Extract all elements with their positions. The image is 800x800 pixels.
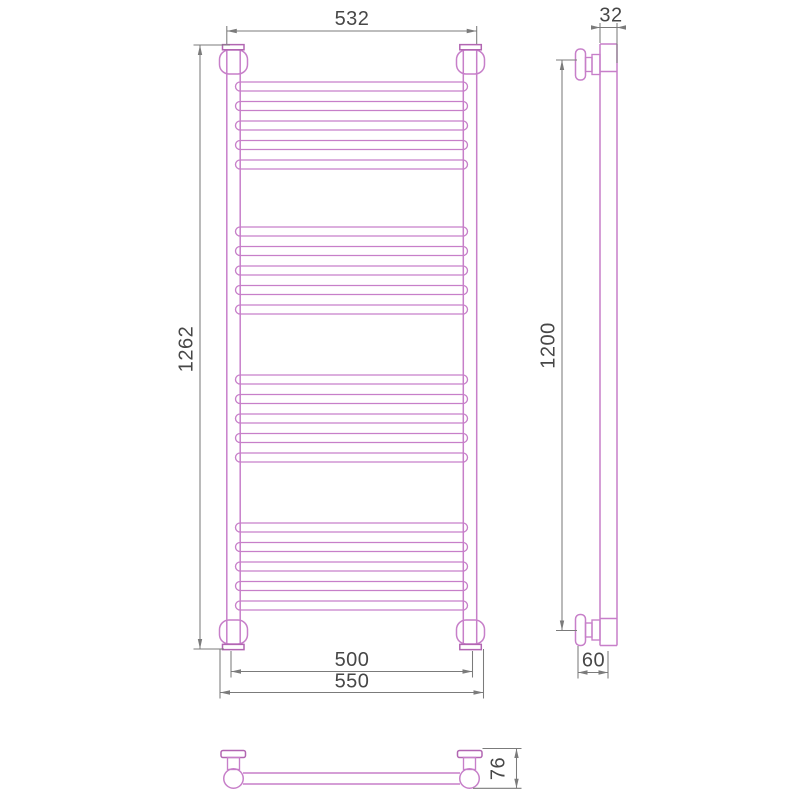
mount-collar-bottom-left: [220, 620, 248, 644]
rung: [236, 434, 468, 443]
side-tube: [600, 44, 617, 646]
rung: [236, 141, 468, 150]
dim-1262-lines: [194, 45, 231, 649]
rung: [236, 247, 468, 256]
rung: [236, 102, 468, 111]
rung: [236, 266, 468, 275]
bracket-neck: [586, 623, 593, 637]
rung: [236, 453, 468, 462]
bracket-neck: [586, 58, 593, 72]
plan-tube: [243, 773, 460, 784]
riser-tubes: [227, 50, 477, 645]
dim-label-bottom-overall: 550: [335, 671, 370, 693]
mount-neck: [228, 758, 240, 770]
rung: [236, 601, 468, 610]
rung: [236, 227, 468, 236]
bracket-wall-plate: [576, 49, 586, 80]
rung: [236, 582, 468, 591]
dim-label-front-height: 1262: [176, 326, 198, 373]
wall-bracket-top: [576, 49, 601, 80]
wall-bracket-bottom: [576, 615, 601, 646]
rung: [236, 395, 468, 404]
dim-label-side-height: 1200: [538, 322, 560, 369]
rung: [236, 543, 468, 552]
mount-collar-top-right: [457, 50, 485, 74]
plan-mount-left: [221, 751, 246, 789]
rung: [236, 82, 468, 91]
rung: [236, 375, 468, 384]
bracket-collar: [592, 620, 600, 640]
plan-mount-right: [458, 751, 483, 789]
plan-view: 76: [221, 749, 522, 789]
rung: [236, 562, 468, 571]
dim-label-bottom-centers: 500: [335, 649, 370, 671]
dim-label-plan-depth: 76: [488, 757, 510, 780]
mount-collar-top-left: [220, 50, 248, 74]
rung: [236, 523, 468, 532]
front-view: 532 1262 500 550: [176, 8, 485, 699]
rung: [236, 121, 468, 130]
rung: [236, 286, 468, 295]
dim-532: 532: [227, 8, 477, 44]
dim-label-front-width: 532: [335, 8, 370, 30]
mount-collar-bottom-right: [457, 620, 485, 644]
mount-neck: [464, 758, 476, 770]
dim-60: 60: [578, 646, 608, 679]
rung: [236, 414, 468, 423]
dim-32-lines: [591, 23, 626, 63]
dim-76: 76: [473, 749, 522, 789]
rung-ladder: [236, 82, 468, 610]
mount-circle: [224, 769, 244, 789]
dim-label-side-depth: 32: [599, 5, 622, 27]
towel-rail-technical-drawing: 532 1262 500 550: [0, 0, 800, 800]
side-view: 32 1200 60: [538, 5, 627, 679]
drawing-canvas: 532 1262 500 550: [0, 0, 800, 800]
bracket-collar: [592, 55, 600, 75]
rung: [236, 305, 468, 314]
mount-wall-plate: [221, 751, 246, 758]
dim-1200: 1200: [538, 60, 578, 631]
rung: [236, 160, 468, 169]
mount-wall-plate: [458, 751, 483, 758]
mount-circle: [460, 769, 480, 789]
tube-end-caps: [223, 45, 482, 650]
dim-label-wall-offset: 60: [582, 650, 605, 672]
dim-1262: 1262: [176, 45, 231, 649]
